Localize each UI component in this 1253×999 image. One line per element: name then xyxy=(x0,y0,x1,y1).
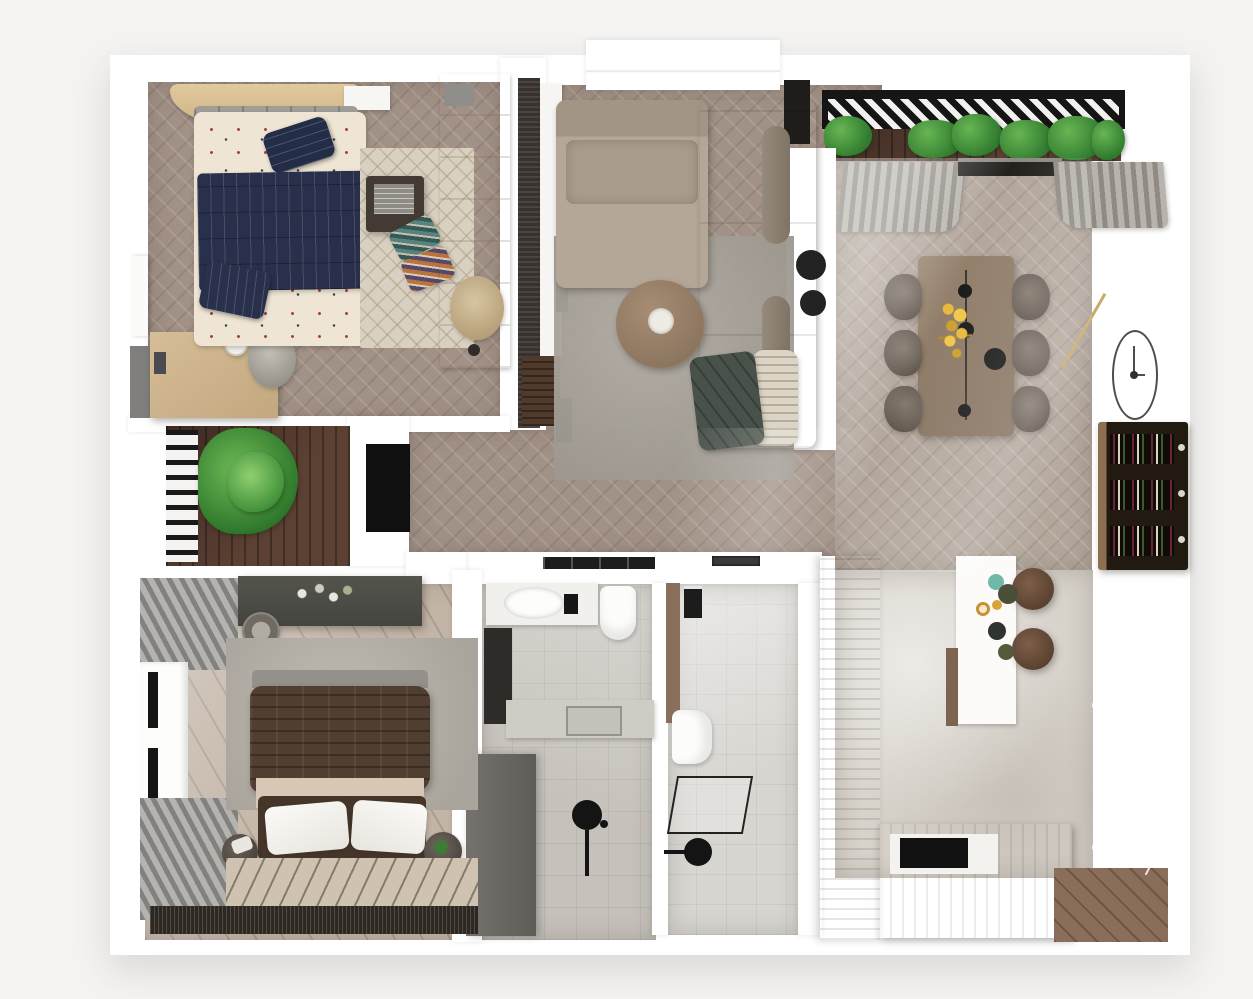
wine-bottle-row xyxy=(1110,434,1174,464)
balcony-beam xyxy=(822,90,1125,99)
vase-flowers-icon xyxy=(288,580,358,614)
cooktop xyxy=(543,557,655,569)
wine-bottle-row xyxy=(1110,480,1174,510)
shower-fixture-icon xyxy=(572,800,602,830)
shower-knob-icon xyxy=(600,820,608,828)
wall-bath2-right xyxy=(798,583,822,935)
bottom-cooktop xyxy=(900,838,968,868)
dining-chair xyxy=(1012,330,1050,376)
plate-olive-icon xyxy=(998,644,1014,660)
table-pendant-icon xyxy=(958,404,971,417)
window-frame xyxy=(958,158,1062,176)
toilet xyxy=(600,586,636,640)
terrace-railing xyxy=(166,430,198,562)
toilet xyxy=(672,710,712,764)
rack-knob-icon xyxy=(1178,536,1185,543)
yellow-flowers-icon xyxy=(938,300,972,376)
wine-bottle-row xyxy=(1110,526,1174,556)
vanity-sink xyxy=(504,587,564,619)
table-pendant-icon xyxy=(984,348,1006,370)
door-leaf xyxy=(132,256,148,336)
black-shower-head-icon xyxy=(684,838,712,866)
shower-pipe-icon xyxy=(585,830,589,876)
dining-chair xyxy=(1012,274,1050,320)
lounge-chair xyxy=(450,276,504,340)
curtain-left xyxy=(836,162,965,232)
wall-clock-icon xyxy=(1112,330,1158,420)
dining-chair xyxy=(1012,386,1050,432)
white-pillow xyxy=(350,799,427,854)
hall-tv xyxy=(366,444,410,532)
curtain-right xyxy=(1053,162,1169,228)
bar-stool xyxy=(1012,568,1054,610)
bath2-door xyxy=(666,583,680,723)
black-faucet-icon xyxy=(564,594,578,614)
island-wood-base xyxy=(946,648,958,726)
fringe-rug xyxy=(150,906,478,934)
dining-chair xyxy=(884,386,922,432)
bar-stool xyxy=(1012,628,1054,670)
bedroom2-curtain-top xyxy=(140,578,238,670)
wood-peninsula xyxy=(820,556,880,940)
coffee-table-tray xyxy=(648,308,674,334)
books-stack xyxy=(374,184,414,214)
striped-mat xyxy=(226,858,478,912)
dining-chair xyxy=(884,330,922,376)
wine-rack xyxy=(1098,422,1188,570)
flush-plate-icon xyxy=(684,586,702,618)
white-pillow xyxy=(264,801,350,856)
plant-sprig-icon xyxy=(434,840,448,854)
green-throw xyxy=(689,350,766,451)
table-pendant-icon xyxy=(958,284,972,298)
window-frame-black xyxy=(148,672,158,728)
white-island xyxy=(956,556,1016,724)
floor-lamp-icon xyxy=(468,344,480,356)
gold-cup-icon xyxy=(976,602,990,616)
bay-window xyxy=(586,40,780,90)
kitchen-panel-wall xyxy=(1092,562,1166,875)
bolster-cushion xyxy=(762,126,790,244)
window-frame-black xyxy=(148,748,158,804)
floor-plan-render xyxy=(0,0,1253,999)
wood-floor-patch xyxy=(1054,868,1168,942)
counter-basin xyxy=(566,706,622,736)
wardrobe-tray xyxy=(444,84,474,106)
rack-knob-icon xyxy=(1178,444,1185,451)
bed2-brown-duvet xyxy=(250,686,430,792)
shower-arm-icon xyxy=(664,850,688,854)
glass-shower-tray xyxy=(667,776,753,834)
rack-knob-icon xyxy=(1178,490,1185,497)
dining-chair xyxy=(884,274,922,320)
plate-dark-icon xyxy=(988,622,1006,640)
sofa-chaise-cushion xyxy=(566,140,698,204)
plate-yellow-icon xyxy=(992,600,1002,610)
balcony xyxy=(822,90,1125,166)
counter-sink xyxy=(712,556,760,566)
laptop-icon xyxy=(154,352,166,374)
